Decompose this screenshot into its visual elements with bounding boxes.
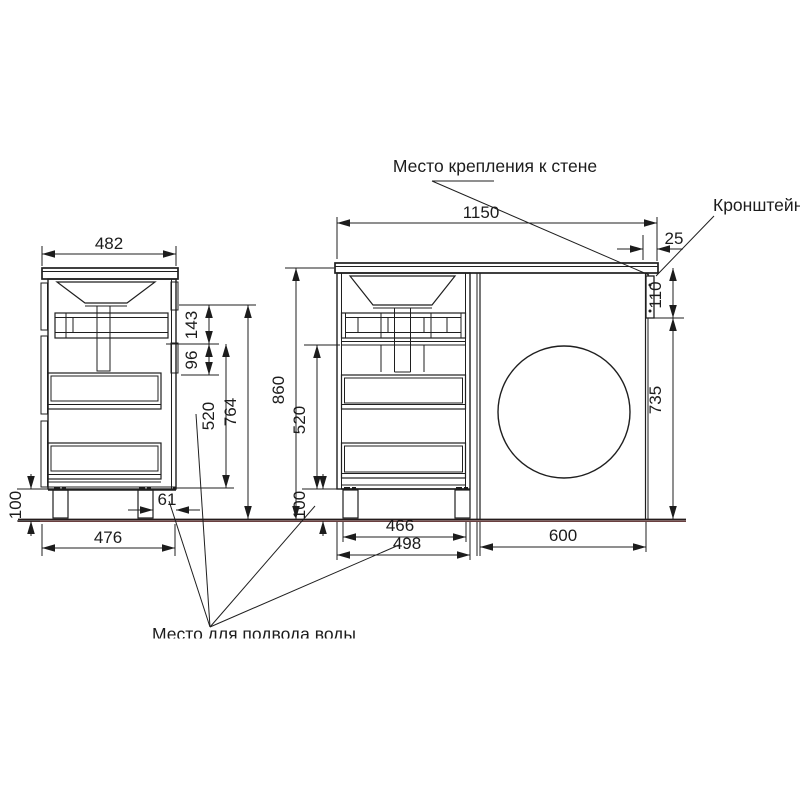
front-legs — [342, 485, 471, 518]
dim-100-side-label: 100 — [6, 491, 25, 519]
dim-600-label: 600 — [549, 526, 577, 545]
washer-drum-circle — [498, 346, 630, 478]
dim-1150-label: 1150 — [463, 203, 500, 222]
side-front-strips — [41, 283, 48, 487]
front-view-cabinet — [335, 263, 658, 519]
side-body — [48, 279, 176, 489]
dim-96-label: 96 — [182, 351, 201, 370]
wall-mount-leader — [432, 181, 649, 275]
dim-110-label: 110 — [646, 281, 665, 308]
dim-860-label: 860 — [269, 376, 288, 404]
dim-735-label: 735 — [646, 386, 665, 414]
dim-1150 — [337, 217, 657, 261]
washing-machine-bay — [477, 273, 648, 519]
side-view-cabinet — [41, 268, 178, 518]
dim-860 — [285, 268, 334, 519]
technical-drawing-page: 482 143 96 520 764 100 61 476 1150 25 11… — [0, 0, 800, 800]
side-countertop — [42, 268, 178, 279]
dim-25-label: 25 — [665, 229, 684, 248]
dim-61-label: 61 — [158, 490, 177, 509]
dim-498-label: 498 — [393, 534, 421, 553]
side-drawer-1 — [55, 313, 168, 338]
dim-476-label: 476 — [94, 528, 122, 547]
label-clip-strip — [140, 639, 370, 664]
side-sink-bowl — [57, 282, 155, 371]
dim-143 — [166, 305, 256, 344]
front-drawer-3 — [342, 443, 466, 478]
side-drawer-2 — [48, 373, 161, 409]
dim-520-side-label: 520 — [199, 402, 218, 430]
front-sink-bowl — [350, 276, 455, 372]
side-wall-mount-tabs — [171, 282, 178, 373]
dim-100-front — [309, 474, 341, 536]
front-countertop — [335, 263, 658, 273]
side-drawer-3 — [48, 443, 161, 479]
dim-764-label: 764 — [221, 398, 240, 426]
vanity-dimension-drawing: 482 143 96 520 764 100 61 476 1150 25 11… — [0, 0, 800, 800]
dim-100-front-label: 100 — [290, 491, 309, 519]
floor-line — [18, 519, 686, 521]
dim-482-label: 482 — [95, 234, 123, 253]
bracket-label: Кронштейн — [713, 195, 800, 215]
dim-520-front-label: 520 — [290, 406, 309, 434]
dim-143-label: 143 — [182, 311, 201, 339]
front-drawer-2 — [342, 375, 466, 409]
dim-466-label: 466 — [386, 516, 414, 535]
front-top-drawer-rail — [342, 313, 466, 372]
wall-mount-label: Место крепления к стене — [393, 156, 597, 176]
